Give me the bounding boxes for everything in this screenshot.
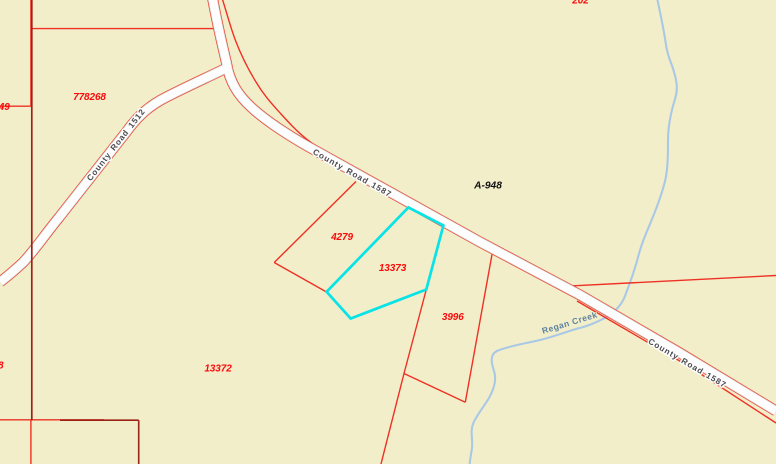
svg-text:A-948: A-948 bbox=[473, 181, 502, 192]
svg-text:202: 202 bbox=[571, 0, 589, 6]
svg-text:8: 8 bbox=[0, 361, 4, 372]
svg-text:13372: 13372 bbox=[204, 363, 232, 374]
svg-text:4279: 4279 bbox=[330, 232, 353, 243]
svg-text:3996: 3996 bbox=[442, 312, 464, 323]
svg-text:778268: 778268 bbox=[73, 92, 106, 103]
svg-text:13373: 13373 bbox=[379, 263, 407, 274]
svg-text:49: 49 bbox=[0, 102, 10, 113]
